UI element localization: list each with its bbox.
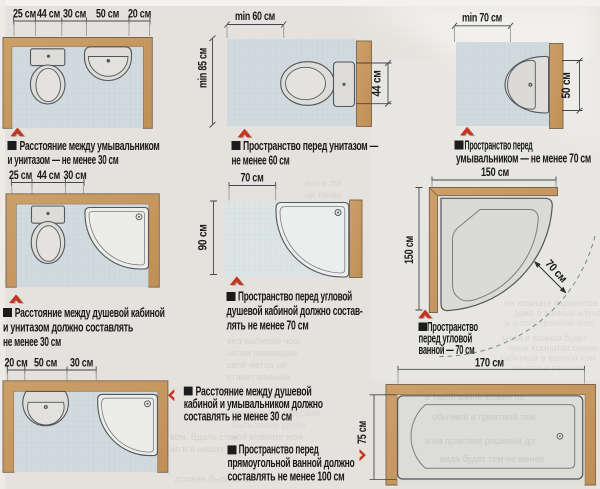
- svg-text:min 60 см: min 60 см: [235, 11, 275, 23]
- svg-text:25 см: 25 см: [13, 9, 36, 21]
- svg-text:прямоугольной ванной должно: прямоугольной ванной должно: [228, 456, 355, 470]
- svg-text:150 см: 150 см: [481, 167, 509, 179]
- svg-text:ставит важным: ставит важным: [227, 372, 290, 382]
- svg-text:44 см: 44 см: [37, 170, 60, 182]
- svg-text:составлять не менее 100 см: составлять не менее 100 см: [228, 470, 345, 484]
- svg-text:Расстояние между умывальником: Расстояние между умывальником: [20, 139, 160, 153]
- svg-text:ной комнате мож: ной комнате мож: [232, 432, 303, 442]
- svg-text:затем размещatь: затем размещatь: [227, 348, 299, 358]
- svg-text:min 85 см: min 85 см: [198, 48, 210, 88]
- svg-text:в такой ванне можно по: в такой ванне можно по: [425, 392, 524, 402]
- svg-text:даже в ванные научась: даже в ванные научась: [513, 308, 600, 318]
- svg-text:и унитазом должно составлять: и унитазом должно составлять: [3, 321, 133, 335]
- svg-text:лять не менее 70 см: лять не менее 70 см: [227, 318, 309, 332]
- svg-text:Пространство перед угловой: Пространство перед угловой: [238, 290, 352, 304]
- svg-text:20 см: 20 см: [5, 358, 28, 370]
- svg-text:70 см: 70 см: [241, 173, 264, 185]
- svg-text:вед-выбирая чош: вед-выбирая чош: [227, 336, 300, 346]
- svg-text:50 см: 50 см: [561, 73, 573, 99]
- svg-text:Пространство перед унитазом —: Пространство перед унитазом —: [243, 139, 379, 153]
- svg-text:кабинкой в ванной ком: кабинкой в ванной ком: [500, 353, 596, 363]
- svg-text:30 см: 30 см: [70, 358, 93, 370]
- svg-text:на комнате вариантов: на комнате вариантов: [505, 298, 598, 308]
- svg-text:25 см: 25 см: [9, 170, 32, 182]
- svg-text:на также: на также: [305, 190, 341, 200]
- svg-text:44 см: 44 см: [372, 71, 384, 97]
- svg-text:Пространство перед: Пространство перед: [239, 443, 319, 457]
- svg-text:и на практике решений дл: и на практике решений дл: [425, 436, 535, 446]
- svg-text:44 см: 44 см: [37, 9, 60, 21]
- svg-text:и унитазом — не менее 30 см: и унитазом — не менее 30 см: [8, 153, 119, 167]
- svg-text:крытая и ванная: крытая и ванная: [512, 363, 581, 373]
- svg-text:30 см: 30 см: [63, 9, 86, 21]
- svg-text:вом. Вдоль стен: вом. Вдоль стен: [170, 432, 238, 442]
- svg-text:вен и тог: вен и тог: [305, 178, 343, 188]
- svg-text:50 см: 50 см: [34, 358, 57, 370]
- svg-text:Пространство перед: Пространство перед: [465, 139, 533, 153]
- svg-text:и о собственном días: и о собственном días: [505, 318, 594, 328]
- svg-text:составлять не менее 30 см: составлять не менее 30 см: [184, 410, 292, 424]
- svg-text:ванной — 70 см: ванной — 70 см: [419, 343, 475, 357]
- svg-text:свой метод не: свой метод не: [227, 360, 286, 370]
- svg-text:но и в нишах: но и в нишах: [170, 444, 225, 454]
- svg-text:min 70 см: min 70 см: [462, 13, 502, 25]
- svg-text:150 см: 150 см: [404, 236, 416, 264]
- svg-text:50 см: 50 см: [96, 9, 119, 21]
- svg-text:нных комнатах синим: нных комнатах синим: [508, 343, 598, 353]
- svg-text:20 см: 20 см: [128, 9, 151, 21]
- svg-text:обычной и приятной тем: обычной и приятной тем: [432, 412, 535, 422]
- svg-text:не менее 60 см: не менее 60 см: [232, 154, 290, 168]
- svg-text:30 см: 30 см: [64, 170, 87, 182]
- svg-text:75 см: 75 см: [357, 421, 369, 444]
- svg-text:90 см: 90 см: [198, 225, 210, 251]
- svg-text:умывальником — не менее 70 см: умывальником — не менее 70 см: [456, 152, 591, 166]
- svg-text:Расстояние между душевой кабин: Расстояние между душевой кабиной: [15, 306, 165, 320]
- svg-text:вида будет тем не менее: вида будет тем не менее: [440, 454, 545, 464]
- svg-text:не менее 30 см: не менее 30 см: [3, 335, 61, 349]
- svg-text:170 см: 170 см: [475, 357, 504, 369]
- svg-text:душевой кабиной должно состав-: душевой кабиной должно состав-: [227, 304, 363, 318]
